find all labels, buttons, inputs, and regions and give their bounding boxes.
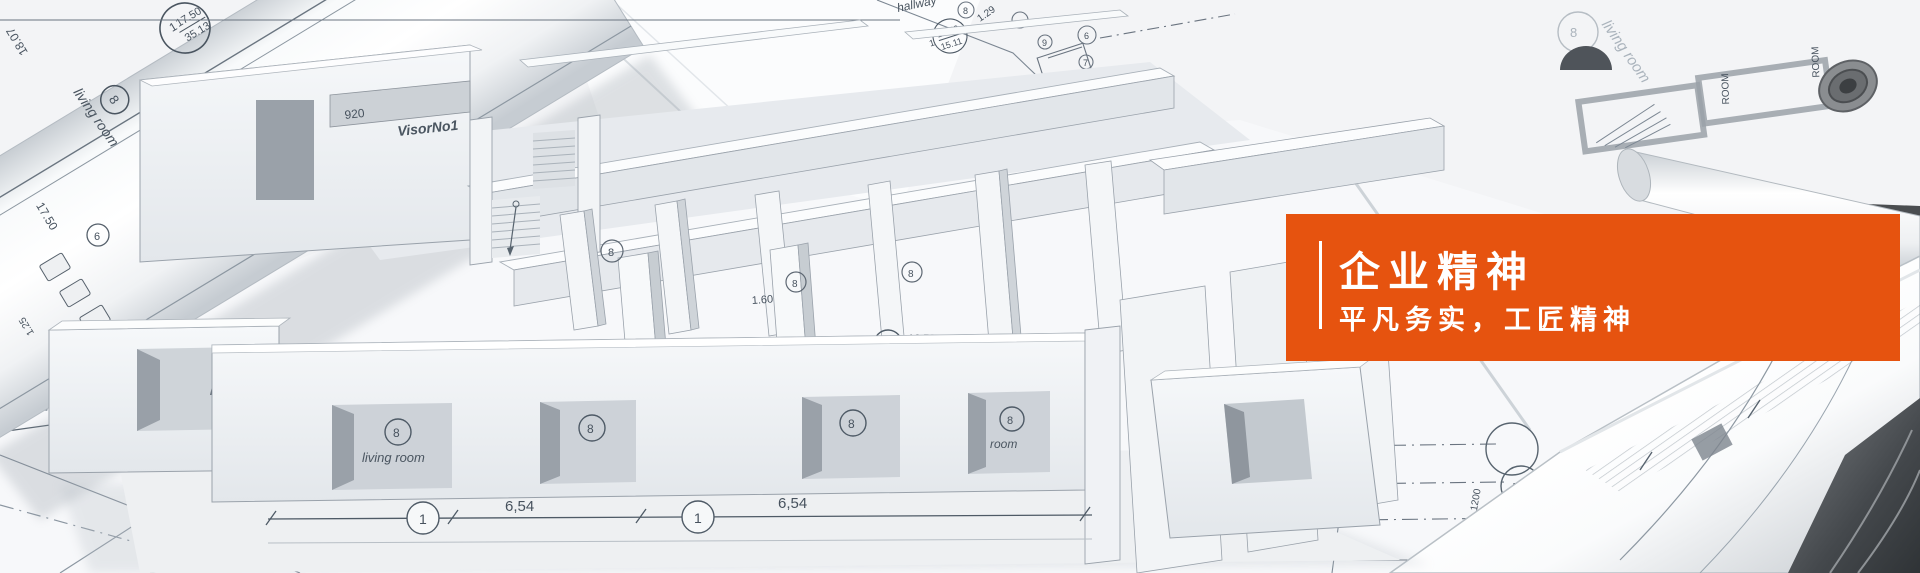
marker-8-top: 8 [963, 6, 968, 16]
w4-marker: 8 [1007, 415, 1013, 427]
axis-1-left: 1 [419, 511, 427, 527]
facade-window-2: 8 [540, 400, 636, 484]
stairs-upper [533, 130, 575, 189]
w1-label: living room [362, 450, 425, 465]
axis-1-right: 1 [694, 510, 702, 526]
facade-window-4: 8 room [968, 391, 1050, 474]
w1-marker: 8 [393, 426, 400, 440]
w3-marker: 8 [848, 417, 855, 431]
door-opening [256, 100, 314, 200]
room-sheet-2: ROOM [1810, 46, 1822, 77]
floor-8a: 8 [608, 247, 614, 259]
dim-654-a: 6,54 [505, 498, 534, 515]
dim-160: 1.60 [751, 294, 773, 307]
facade-window-1: 8 living room [332, 403, 452, 490]
w4-label: room [990, 437, 1017, 451]
marker-6-plan: 6 [1084, 31, 1089, 41]
stairs-lower [492, 196, 540, 258]
marker-8-faint: 8 [1570, 25, 1577, 40]
back-left-block: 920 VisorNo1 [140, 45, 482, 262]
marker-6: 6 [94, 231, 100, 243]
card-divider [1319, 241, 1322, 329]
w2-marker: 8 [587, 422, 594, 436]
room-sheet-1: ROOM [1720, 73, 1732, 104]
marker-9: 9 [1042, 38, 1047, 48]
card-subtitle: 平凡务实，工匠精神 [1339, 298, 1636, 337]
corner-pier [1085, 326, 1120, 564]
dim-654-b: 6,54 [778, 495, 807, 512]
right-lower-block [1151, 358, 1380, 538]
dim-920: 920 [344, 106, 366, 122]
hero-banner: chen 8.4 1 17.50 35.13 8 living room 18.… [0, 0, 1920, 573]
floor-8b: 8 [792, 279, 798, 290]
floor-8c: 8 [908, 269, 914, 280]
card-title: 企业精神 [1339, 238, 1535, 298]
facade-window-3: 8 [802, 395, 900, 479]
spirit-card: 企业精神 平凡务实，工匠精神 [1286, 214, 1900, 361]
marker-7: 7 [1083, 58, 1088, 68]
